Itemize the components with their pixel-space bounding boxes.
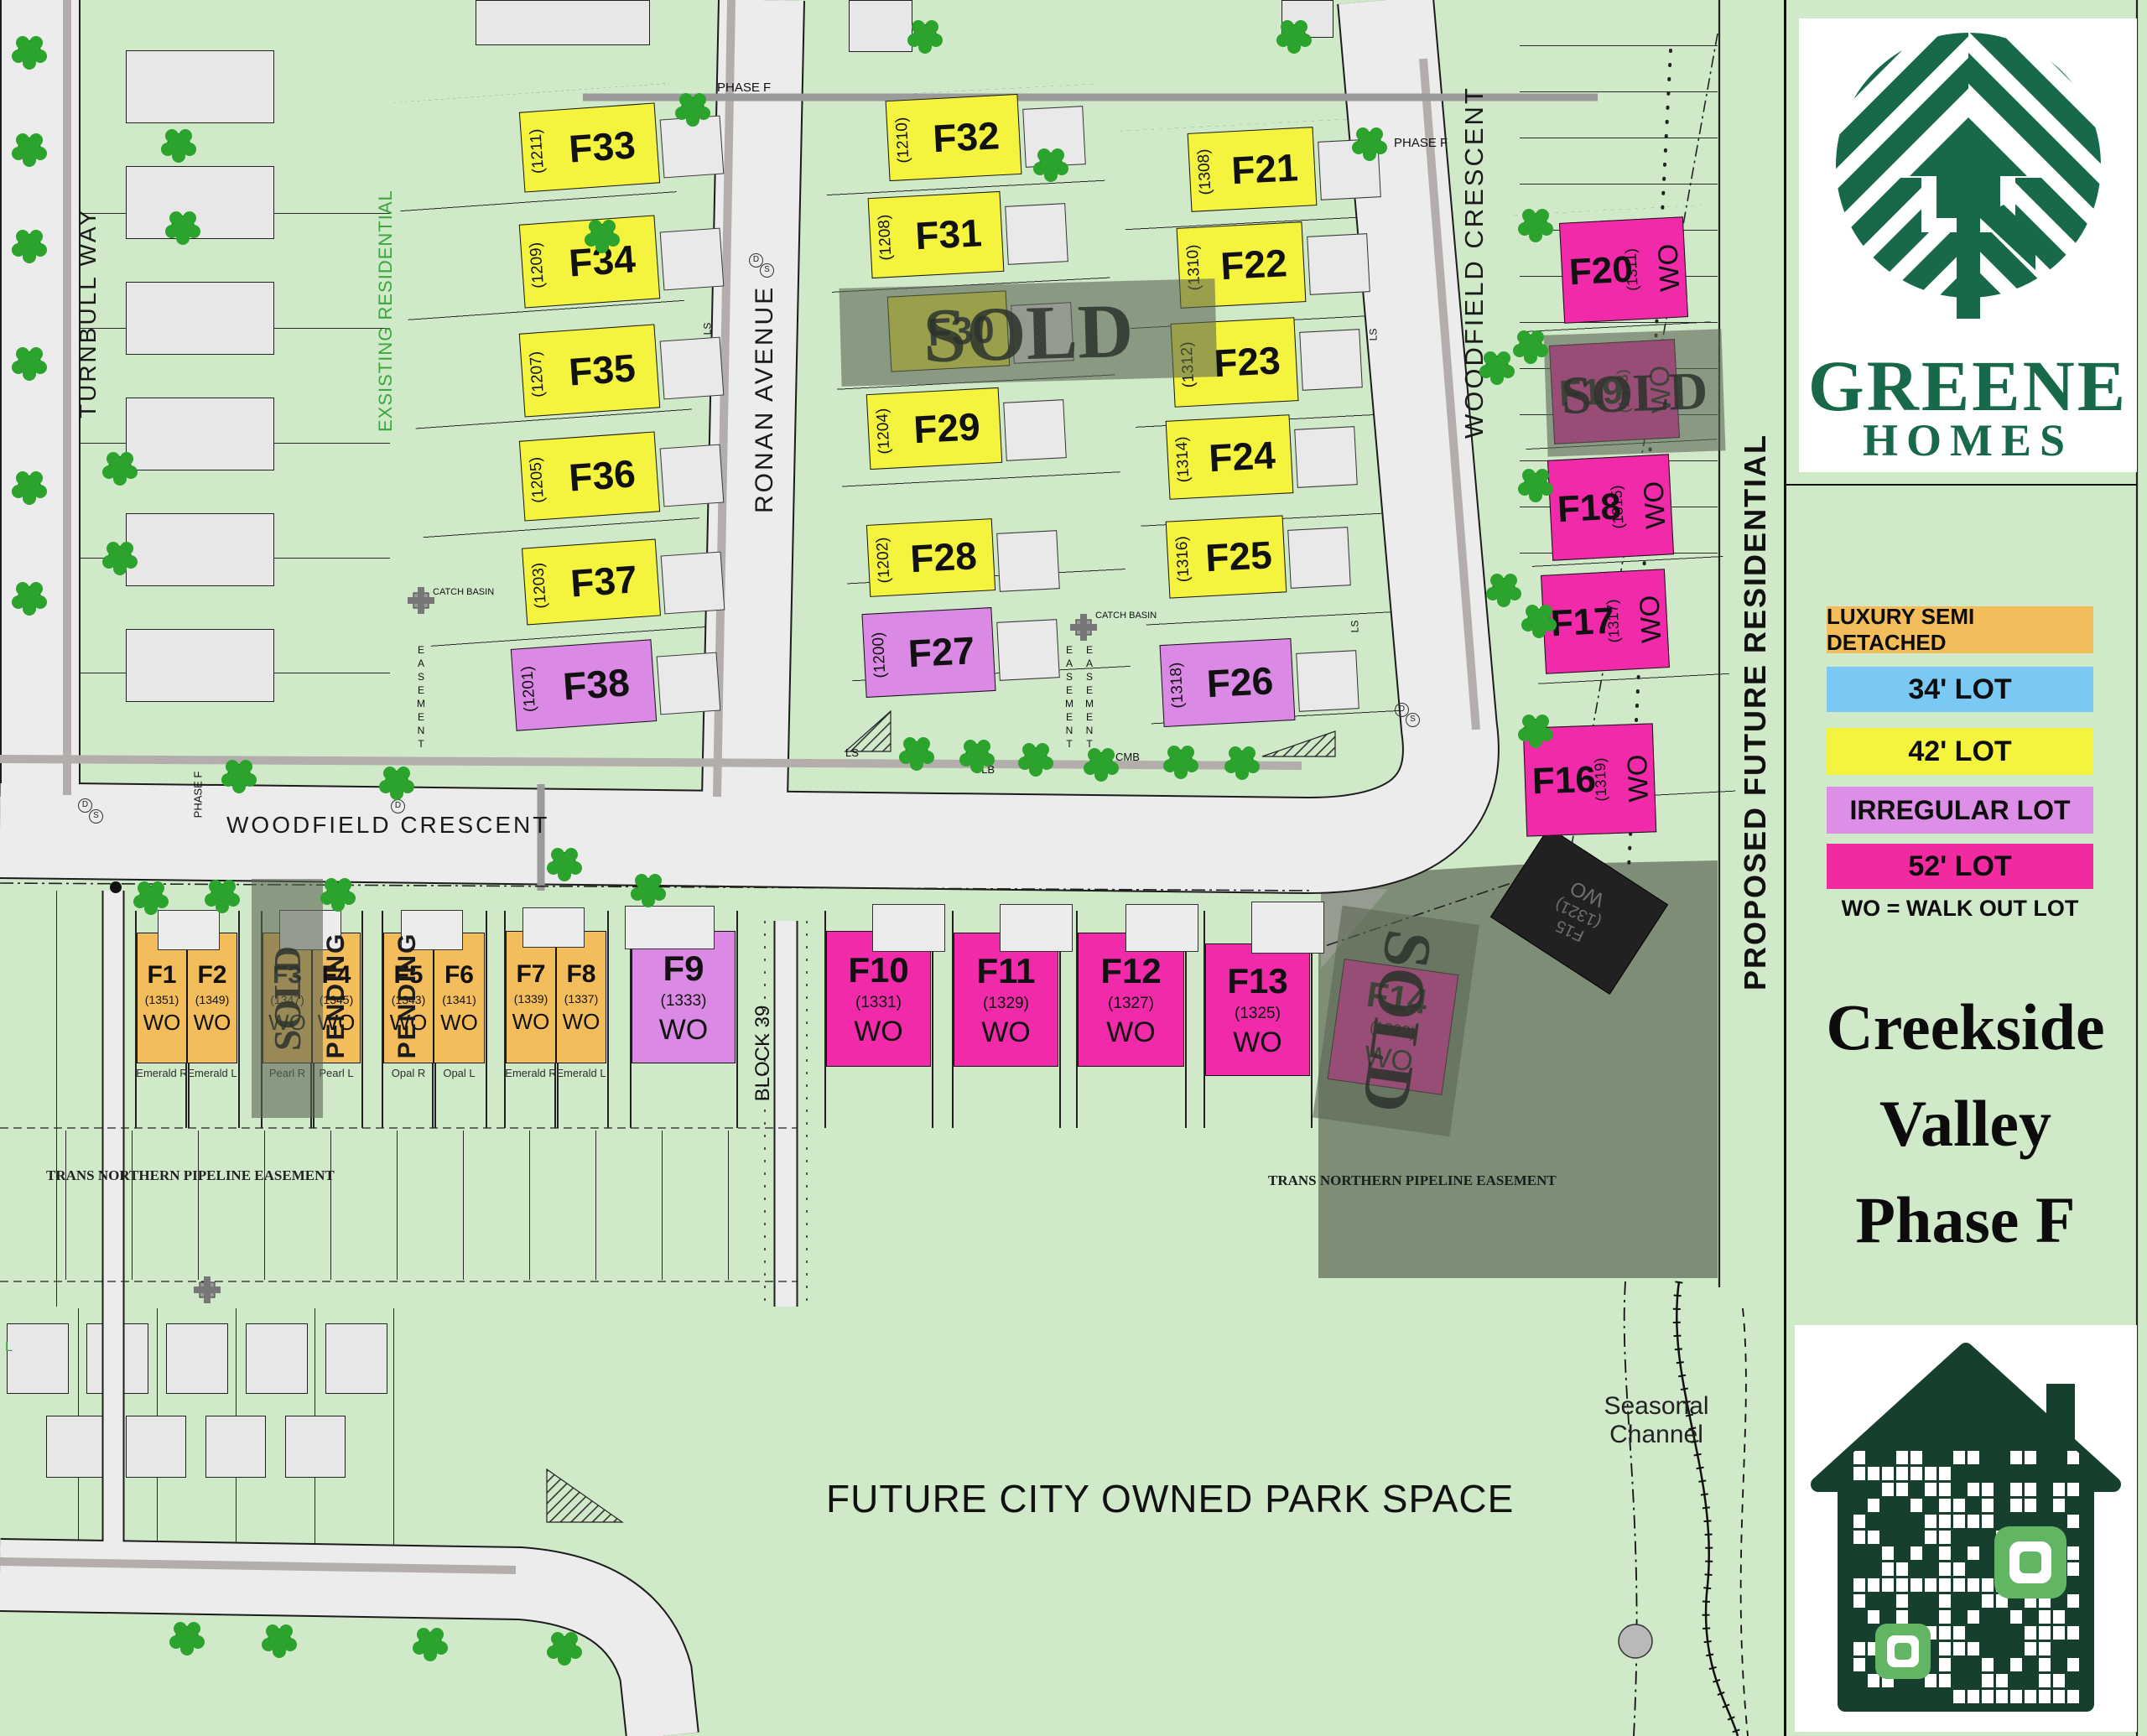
- seasonal-channel-lines: [1619, 1281, 1748, 1736]
- house-footprint: [522, 907, 585, 948]
- map-label-phase_f: PHASE F: [1394, 136, 1448, 150]
- lot-wo: WO: [1637, 475, 1672, 535]
- house-footprint: [1005, 203, 1068, 265]
- lot-F31[interactable]: (1208)F31: [868, 191, 1005, 278]
- tree-icon: [211, 885, 233, 907]
- house-footprint: [1307, 233, 1370, 295]
- lot-num: (1349): [195, 993, 229, 1006]
- lot-num: (1317): [1604, 591, 1625, 651]
- lot-F34[interactable]: (1209)F34: [519, 215, 661, 308]
- lot-F18[interactable]: F18(1315)WO: [1547, 454, 1674, 560]
- tree-icon: [109, 547, 131, 569]
- lot-lbl: F25: [1196, 532, 1282, 581]
- utility-symbol-d: D: [78, 798, 92, 813]
- lot-num: (1204): [874, 406, 895, 457]
- map-label-ls: LS: [845, 746, 859, 759]
- map-label-cmb: CMB: [1115, 751, 1140, 763]
- title-line3: Phase F: [1784, 1182, 2147, 1258]
- tree-icon: [682, 98, 704, 120]
- lot-lbl: F37: [552, 555, 655, 607]
- creekside-site-plan: F1(1351)WOEmerald RF2(1349)WOEmerald LF3…: [0, 0, 2147, 1736]
- lot-F1[interactable]: F1(1351)WO: [137, 933, 187, 1063]
- tree-icon: [1520, 335, 1541, 357]
- existing-residential-label: EXSISTING RESIDENTIAL: [375, 214, 397, 432]
- lot-lbl: F24: [1196, 431, 1289, 481]
- lot-num: (1315): [1608, 477, 1629, 537]
- sold-label: SOLD: [265, 946, 309, 1051]
- house-footprint: [660, 444, 725, 507]
- lot-wo: WO: [512, 1009, 550, 1035]
- lot-F12[interactable]: F12(1327)WO: [1078, 933, 1184, 1067]
- pending-label: PENDING: [393, 870, 422, 1121]
- house-footprint: [625, 906, 715, 949]
- sold-label: SOLD: [922, 285, 1134, 380]
- tree-icon: [1525, 214, 1547, 236]
- lot-F37[interactable]: (1203)F37: [522, 539, 661, 626]
- lot-F16[interactable]: F16(1319)WO: [1523, 723, 1656, 836]
- lot-F32[interactable]: (1210)F32: [886, 94, 1022, 181]
- lot-lbl: F13: [1227, 961, 1287, 1001]
- street-woodfield-crescent-side: WOODFIELD CRESCENT: [1459, 120, 1489, 439]
- lot-wo: WO: [1633, 589, 1668, 649]
- tree-icon: [18, 587, 40, 609]
- lot-F25[interactable]: (1316)F25: [1166, 515, 1287, 598]
- lot-wo: WO: [1621, 748, 1655, 808]
- lot-line: [238, 911, 240, 1128]
- tree-icon: [419, 1633, 441, 1655]
- house-footprint: [1251, 902, 1324, 954]
- lot-lbl: F38: [541, 658, 651, 711]
- lot-num: (1319): [1591, 750, 1610, 809]
- lot-num: (1202): [874, 534, 895, 585]
- house-footprint: [1287, 527, 1351, 589]
- lot-F36[interactable]: (1205)F36: [519, 431, 660, 521]
- wo-note: WO = WALK OUT LOT: [1827, 896, 2093, 922]
- house-footprint: [1296, 650, 1359, 712]
- lot-num: (1209): [527, 240, 548, 291]
- lot-F7[interactable]: F7(1339)WO: [506, 931, 556, 1063]
- house-footprint: [1294, 426, 1358, 488]
- tree-icon: [268, 1629, 290, 1651]
- lot-model: Opal L: [427, 1067, 491, 1079]
- tree-icon: [1170, 751, 1192, 772]
- tree-icon: [140, 886, 162, 908]
- house-footprint: [1299, 329, 1363, 391]
- lot-num: (1200): [870, 630, 891, 681]
- lot-lbl: F8: [566, 960, 595, 989]
- tree-icon: [1528, 610, 1550, 632]
- lot-wo: WO: [1651, 237, 1687, 298]
- tree-icon: [18, 138, 40, 160]
- lot-F33[interactable]: (1211)F33: [519, 102, 660, 192]
- lot-lbl: F26: [1190, 657, 1291, 707]
- lot-num: (1327): [1108, 995, 1154, 1013]
- lot-wo: WO: [1106, 1016, 1156, 1049]
- lot-model: Emerald L: [549, 1067, 613, 1079]
- lot-F28[interactable]: (1202)F28: [866, 518, 996, 597]
- lot-num: (1208): [876, 212, 897, 263]
- lot-num: (1351): [145, 993, 179, 1006]
- lot-num: (1318): [1167, 660, 1188, 711]
- street-woodfield-crescent: WOODFIELD CRESCENT: [226, 812, 549, 839]
- tree-icon: [1025, 748, 1047, 770]
- lot-num: (1311): [1622, 240, 1643, 299]
- lot-lbl: F27: [892, 626, 991, 677]
- lot-wo: WO: [1233, 1027, 1282, 1059]
- lot-F24[interactable]: (1314)F24: [1166, 414, 1294, 500]
- lot-lbl: F2: [197, 961, 226, 990]
- lot-wo: WO: [659, 1014, 709, 1047]
- lot-num: (1337): [564, 992, 598, 1006]
- lot-lbl: F32: [916, 112, 1017, 162]
- logo-panel: GREENE HOMES: [1799, 18, 2137, 472]
- tree-icon: [1040, 153, 1062, 175]
- lot-lbl: F28: [897, 532, 991, 582]
- tree-icon: [176, 1627, 198, 1649]
- legend-item: 42' LOT: [1827, 728, 2093, 775]
- utility-symbol-s: S: [89, 809, 103, 824]
- lot-F8[interactable]: F8(1337)WO: [556, 931, 606, 1063]
- easement-label: EASEMENT: [1063, 644, 1075, 751]
- brand-homes: HOMES: [1799, 414, 2137, 466]
- house-footprint: [660, 337, 725, 400]
- lot-num: (1325): [1235, 1005, 1281, 1023]
- house-footprint: [996, 530, 1060, 592]
- title-line1: Creekside: [1784, 990, 2147, 1065]
- block39-label: BLOCK 39: [751, 961, 775, 1146]
- house-footprint: [661, 552, 725, 615]
- lot-lbl: F12: [1100, 951, 1161, 991]
- legend-item: 34' LOT: [1827, 667, 2093, 712]
- street-turnbull-way: TURNBULL WAY: [75, 209, 101, 418]
- lot-F11[interactable]: F11(1329)WO: [954, 933, 1058, 1067]
- tree-icon: [591, 225, 613, 247]
- lot-lbl: F35: [549, 344, 654, 396]
- house-footprint: [1000, 904, 1073, 952]
- lot-num: (1333): [661, 992, 707, 1011]
- lot-F35[interactable]: (1207)F35: [519, 324, 661, 417]
- tree-icon: [18, 235, 40, 257]
- lot-lbl: F1: [147, 961, 176, 990]
- map-label-phase_f: PHASE F: [717, 81, 771, 95]
- house-footprint: [657, 652, 721, 715]
- lot-lbl: F6: [444, 961, 474, 990]
- lot-lbl: F16: [1531, 759, 1597, 803]
- map-label-l: L: [5, 1340, 13, 1355]
- tree-icon: [966, 745, 988, 767]
- tree-icon: [1090, 753, 1112, 775]
- seasonal-channel-label: Seasonal Channel: [1539, 1392, 1774, 1449]
- street-ronan-avenue: RONAN AVENUE: [751, 295, 779, 513]
- lot-wo: WO: [854, 1016, 903, 1048]
- easement-label: EASEMENT: [1084, 644, 1095, 751]
- map-label-phase_f: PHASE F: [191, 772, 204, 819]
- map-label-ls: LS: [701, 323, 713, 335]
- legend-item: LUXURY SEMI DETACHED: [1827, 606, 2093, 653]
- lot-num: (1329): [983, 995, 1029, 1013]
- lot-num: (1314): [1173, 434, 1194, 485]
- lot-F26[interactable]: (1318)F26: [1160, 638, 1296, 727]
- lot-F13[interactable]: F13(1325)WO: [1205, 943, 1310, 1076]
- tree-icon: [109, 457, 131, 479]
- lot-line: [361, 911, 363, 1128]
- sold-band-F14: SOLD: [1313, 906, 1479, 1136]
- qr-panel: [1795, 1325, 2137, 1732]
- lot-line: [486, 911, 487, 1128]
- lot-line: [607, 911, 609, 1128]
- tree-icon: [18, 352, 40, 374]
- lot-num: (1201): [518, 663, 540, 715]
- lot-F17[interactable]: F17(1317)WO: [1541, 569, 1670, 674]
- lot-F21[interactable]: (1308)F21: [1188, 127, 1318, 212]
- lot-lbl: F21: [1218, 143, 1313, 194]
- tree-icon: [1359, 133, 1380, 154]
- info-sidebar: GREENE HOMES LUXURY SEMI DETACHED34' LOT…: [1784, 0, 2147, 1736]
- lot-wo: WO: [194, 1010, 231, 1036]
- map-label-ls: LS: [1349, 621, 1360, 633]
- sold-band-F19: SOLD: [1544, 329, 1726, 456]
- house-footprint: [660, 116, 725, 179]
- tree-icon: [554, 1637, 575, 1659]
- lot-F38[interactable]: (1201)F38: [511, 639, 657, 730]
- lot-model: Emerald L: [180, 1067, 244, 1079]
- lot-num: (1308): [1195, 146, 1216, 197]
- tree-icon: [228, 765, 250, 787]
- lot-F9[interactable]: F9(1333)WO: [632, 931, 736, 1063]
- lot-num: (1207): [527, 349, 548, 400]
- house-footprint: [1003, 399, 1067, 461]
- lot-num: (1211): [527, 126, 548, 177]
- lot-wo: WO: [440, 1010, 478, 1036]
- house-footprint: [158, 910, 220, 950]
- house-footprint: [996, 619, 1060, 681]
- lot-num: (1316): [1173, 533, 1194, 585]
- lot-wo: WO: [563, 1009, 600, 1035]
- title-line2: Valley: [1784, 1086, 2147, 1162]
- tree-icon: [1486, 356, 1508, 378]
- house-footprint: [872, 904, 945, 952]
- house-footprint: [1125, 904, 1198, 952]
- map-label-catch_basin: CATCH BASIN: [433, 587, 494, 597]
- legend-item: 52' LOT: [1827, 844, 2093, 889]
- lot-F2[interactable]: F2(1349)WO: [187, 933, 237, 1063]
- lot-lbl: F36: [549, 450, 654, 502]
- legend-item: IRREGULAR LOT: [1827, 787, 2093, 834]
- sold-label: SOLD: [1345, 925, 1446, 1116]
- tree-icon: [1525, 474, 1547, 496]
- sold-band-F30: SOLD: [840, 278, 1218, 387]
- sold-label: SOLD: [1561, 359, 1709, 426]
- lot-lbl: F10: [848, 950, 908, 990]
- qr-code-house: [1795, 1325, 2137, 1732]
- lot-num: (1331): [855, 994, 902, 1012]
- tree-icon: [1493, 579, 1515, 600]
- lot-lbl: F9: [663, 949, 704, 989]
- lot-lbl: F33: [549, 121, 654, 173]
- lot-lbl: F11: [976, 951, 1035, 991]
- easement-label: EASEMENT: [415, 644, 427, 751]
- tree-icon: [914, 25, 936, 47]
- sold-band-F3: SOLD: [252, 879, 323, 1118]
- lot-num: (1205): [527, 455, 548, 506]
- lot-wo: WO: [143, 1010, 181, 1036]
- tree-icon: [18, 41, 40, 63]
- lot-F29[interactable]: (1204)F29: [866, 387, 1002, 470]
- tree-icon: [1525, 720, 1547, 741]
- tree-icon: [906, 742, 928, 764]
- tree-icon: [18, 476, 40, 498]
- utility-symbol-s: S: [760, 263, 774, 278]
- lot-num: (1210): [893, 115, 914, 166]
- lot-num: (1341): [442, 993, 476, 1006]
- lot-lbl: F31: [898, 209, 1000, 259]
- map-label-catch_basin: CATCH BASIN: [1095, 611, 1157, 621]
- lot-wo: WO: [981, 1016, 1031, 1049]
- tree-icon: [637, 879, 659, 901]
- house-footprint: [660, 228, 725, 291]
- utility-symbol-s: S: [1406, 713, 1420, 727]
- pipeline-easement-label-left: TRANS NORTHERN PIPELINE EASEMENT: [46, 1167, 335, 1184]
- tree-icon: [1231, 751, 1253, 773]
- pending-label: PENDING: [322, 870, 351, 1121]
- tree-icon: [172, 216, 194, 238]
- map-label-ls: LS: [1367, 329, 1379, 341]
- lot-lbl: F22: [1207, 239, 1302, 289]
- lot-num: (1203): [529, 560, 551, 611]
- lot-F20[interactable]: F20(1311)WO: [1559, 216, 1688, 324]
- pipeline-easement-label-right: TRANS NORTHERN PIPELINE EASEMENT: [1268, 1172, 1557, 1189]
- lot-F27[interactable]: (1200)F27: [861, 607, 996, 698]
- tree-icon: [168, 134, 190, 156]
- lot-line: [736, 911, 738, 1128]
- lot-lbl: F7: [516, 960, 545, 989]
- tree-icon: [386, 772, 408, 793]
- park-space-label: FUTURE CITY OWNED PARK SPACE: [826, 1476, 1514, 1521]
- lot-F6[interactable]: F6(1341)WO: [434, 933, 485, 1063]
- proposed-future-residential-label: PROPOSED FUTURE RESIDENTIAL: [1738, 621, 1773, 990]
- tree-icon: [327, 883, 349, 905]
- lot-lbl: F29: [897, 403, 998, 453]
- tree-icon: [1283, 25, 1305, 47]
- tree-icon: [554, 853, 575, 875]
- lot-num: (1339): [514, 992, 548, 1006]
